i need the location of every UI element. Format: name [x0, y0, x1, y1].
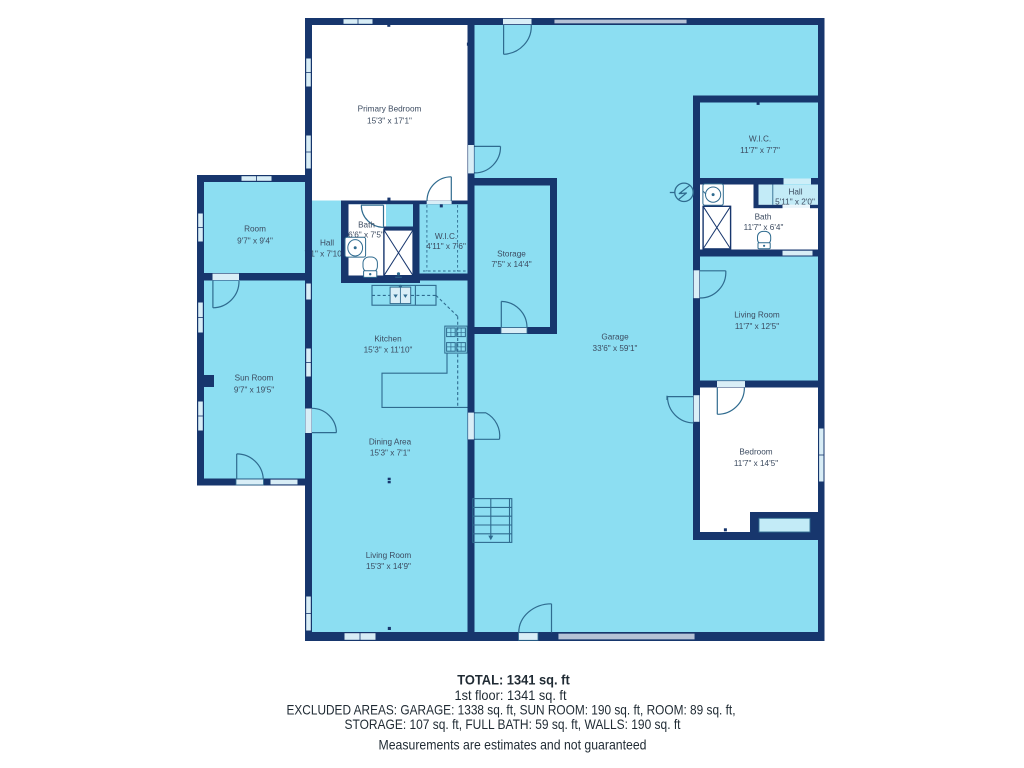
svg-text:11'7" x 7'7": 11'7" x 7'7"	[740, 146, 780, 155]
svg-text:Sun Room: Sun Room	[235, 374, 274, 383]
svg-text:Bath: Bath	[358, 220, 375, 229]
svg-text:Measurements are estimates and: Measurements are estimates and not guara…	[379, 736, 647, 752]
svg-text:15'3" x 14'9": 15'3" x 14'9"	[366, 562, 411, 571]
svg-text:7'5" x 14'4": 7'5" x 14'4"	[491, 260, 531, 269]
svg-text:Kitchen: Kitchen	[374, 335, 402, 344]
svg-text:Bath: Bath	[755, 213, 772, 222]
svg-text:Hall: Hall	[320, 239, 334, 248]
svg-text:15'3" x 7'1": 15'3" x 7'1"	[370, 449, 410, 458]
svg-text:Hall: Hall	[788, 188, 802, 197]
svg-text:Storage: Storage	[497, 250, 526, 259]
svg-text:Bedroom: Bedroom	[739, 447, 772, 456]
svg-text:33'6" x 59'1": 33'6" x 59'1"	[593, 344, 638, 353]
svg-text:TOTAL: 1341 sq. ft: TOTAL: 1341 sq. ft	[457, 671, 570, 687]
svg-text:Garage: Garage	[601, 333, 629, 342]
svg-text:9'7" x 9'4": 9'7" x 9'4"	[237, 237, 273, 246]
svg-text:15'3" x 11'10": 15'3" x 11'10"	[364, 346, 413, 355]
svg-text:Primary Bedroom: Primary Bedroom	[358, 105, 422, 114]
svg-text:4'11" x 7'6": 4'11" x 7'6"	[426, 242, 466, 251]
svg-text:15'3" x 17'1": 15'3" x 17'1"	[367, 116, 412, 125]
svg-text:Room: Room	[244, 225, 266, 234]
svg-text:Dining Area: Dining Area	[369, 438, 412, 447]
svg-text:Living Room: Living Room	[366, 551, 412, 560]
svg-text:STORAGE: 107 sq. ft, FULL BATH: STORAGE: 107 sq. ft, FULL BATH: 59 sq. f…	[345, 716, 681, 732]
svg-text:6'6" x 7'5": 6'6" x 7'5"	[348, 230, 384, 239]
svg-text:W.I.C.: W.I.C.	[749, 135, 771, 144]
svg-text:EXCLUDED AREAS: GARAGE: 1338 s: EXCLUDED AREAS: GARAGE: 1338 sq. ft, SUN…	[287, 702, 736, 718]
svg-text:9'7" x 19'5": 9'7" x 19'5"	[234, 386, 274, 395]
svg-text:5'11" x 2'0": 5'11" x 2'0"	[775, 198, 815, 207]
svg-text:11'7" x 14'5": 11'7" x 14'5"	[734, 459, 778, 468]
svg-text:W.I.C.: W.I.C.	[435, 232, 457, 241]
svg-text:11'7" x 12'5": 11'7" x 12'5"	[735, 322, 779, 331]
svg-text:11'7" x 6'4": 11'7" x 6'4"	[744, 223, 784, 232]
svg-text:Living Room: Living Room	[734, 311, 780, 320]
